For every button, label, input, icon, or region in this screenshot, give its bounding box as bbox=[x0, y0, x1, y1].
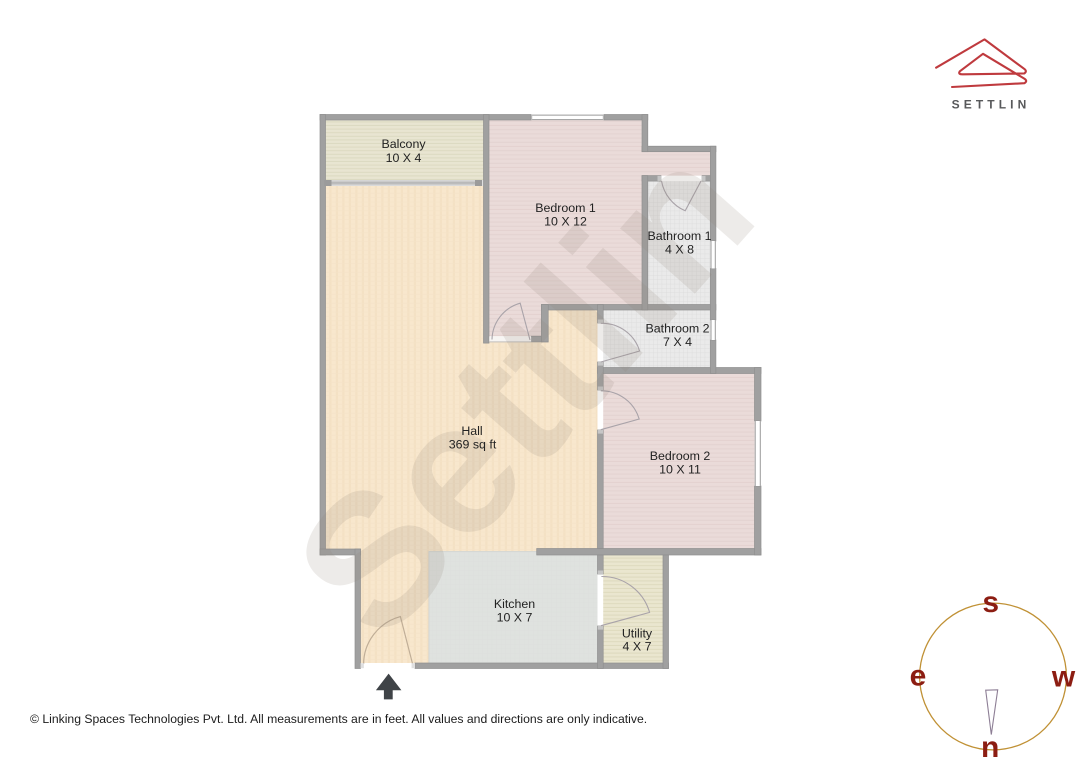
svg-text:Balcony: Balcony bbox=[381, 137, 426, 151]
svg-text:7 X 4: 7 X 4 bbox=[663, 335, 692, 349]
svg-text:Bedroom 2: Bedroom 2 bbox=[650, 449, 711, 463]
svg-text:10 X 7: 10 X 7 bbox=[497, 611, 533, 625]
svg-text:Bedroom 1: Bedroom 1 bbox=[535, 201, 596, 215]
svg-text:Hall: Hall bbox=[461, 424, 482, 438]
svg-text:369 sq ft: 369 sq ft bbox=[449, 437, 497, 451]
svg-text:© Linking Spaces Technologies: © Linking Spaces Technologies Pvt. Ltd. … bbox=[30, 712, 647, 726]
svg-text:10 X 11: 10 X 11 bbox=[659, 462, 701, 476]
svg-text:w: w bbox=[1051, 661, 1076, 694]
svg-text:e: e bbox=[910, 660, 927, 693]
svg-text:10 X 4: 10 X 4 bbox=[386, 151, 422, 165]
svg-text:Bathroom 1: Bathroom 1 bbox=[647, 229, 711, 243]
svg-text:4 X 8: 4 X 8 bbox=[665, 243, 694, 257]
svg-text:n: n bbox=[981, 731, 999, 764]
svg-text:s: s bbox=[982, 586, 999, 619]
svg-text:SETTLIN: SETTLIN bbox=[952, 98, 1031, 112]
svg-text:Kitchen: Kitchen bbox=[494, 597, 535, 611]
svg-text:10 X 12: 10 X 12 bbox=[544, 215, 587, 229]
svg-text:Bathroom 2: Bathroom 2 bbox=[645, 321, 709, 335]
svg-text:4 X 7: 4 X 7 bbox=[623, 639, 652, 653]
